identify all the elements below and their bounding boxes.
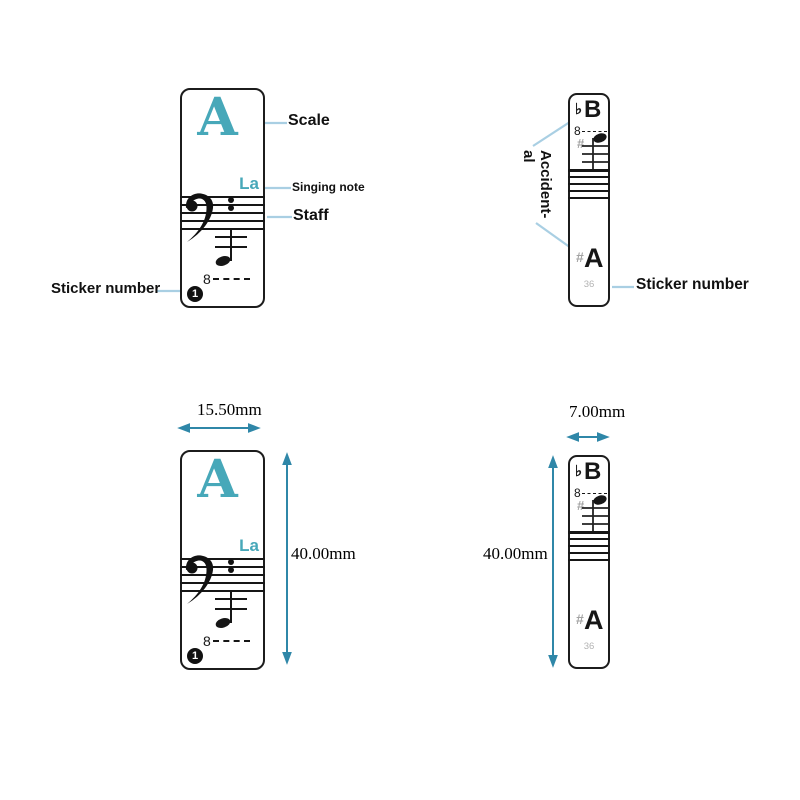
- white-width-arrow: [180, 425, 258, 432]
- black-width-arrow: [569, 434, 607, 441]
- octave-number: 8: [203, 633, 211, 649]
- flat-symbol: ♭: [575, 100, 582, 118]
- sticker-number-label-right: Sticker number: [636, 276, 749, 294]
- accidental-label-line2: al: [520, 150, 537, 228]
- staff-lines: [568, 169, 610, 199]
- octave-number: 8: [203, 271, 211, 287]
- scale-letter: A: [182, 92, 253, 144]
- clef-dot: [228, 205, 234, 211]
- white-key-sticker-dimensioned: A La 8 1: [180, 450, 265, 670]
- scale-label: Scale: [288, 112, 330, 130]
- accidental-label: Accident- al: [518, 150, 554, 228]
- staff-label: Staff: [293, 207, 329, 225]
- singing-note-text: La: [239, 536, 259, 556]
- sharp-letter: A: [584, 243, 604, 274]
- low-note-icon: [206, 228, 250, 270]
- high-note-icon: [578, 494, 612, 534]
- accidental-label-line1: Accident-: [537, 150, 554, 228]
- white-height-dimension: 40.00mm: [291, 544, 356, 564]
- flat-letter: B: [584, 96, 601, 124]
- sticker-number-label-left: Sticker number: [51, 280, 160, 297]
- singing-note-label: Singing note: [292, 180, 365, 194]
- sharp-letter: A: [584, 605, 604, 636]
- sharp-symbol-bottom: #: [576, 249, 584, 265]
- low-note-icon: [206, 590, 250, 632]
- octave-marker: 8: [203, 633, 250, 649]
- octave-dashes: [213, 278, 250, 280]
- staff-lines: [568, 531, 610, 561]
- white-height-arrow: [284, 455, 291, 662]
- sticker-number-text: 36: [570, 279, 608, 290]
- clef-dot: [228, 197, 234, 203]
- black-width-dimension: 7.00mm: [569, 402, 625, 422]
- singing-note-text: La: [239, 174, 259, 194]
- black-height-dimension: 40.00mm: [483, 544, 548, 564]
- clef-dot: [228, 559, 234, 565]
- high-note-icon: [578, 132, 612, 172]
- annotation-lines-layer: [0, 0, 800, 800]
- clef-dot: [228, 567, 234, 573]
- white-width-dimension: 15.50mm: [197, 400, 262, 420]
- sticker-number-badge: 1: [187, 286, 203, 302]
- sticker-number-text: 36: [570, 641, 608, 652]
- black-key-sticker-dimensioned: ♭ B 8 # # A 36: [568, 455, 610, 669]
- flat-symbol: ♭: [575, 462, 582, 480]
- flat-letter: B: [584, 458, 601, 486]
- sticker-number-badge: 1: [187, 648, 203, 664]
- black-key-sticker-annotated: ♭ B 8 # # A 36: [568, 93, 610, 307]
- scale-letter: A: [182, 454, 253, 506]
- white-key-sticker-annotated: A La 8 1: [180, 88, 265, 308]
- black-height-arrow: [550, 458, 557, 665]
- octave-marker: 8: [203, 271, 250, 287]
- octave-dashes: [213, 640, 250, 642]
- sticker-diagram-canvas: A La 8 1 Scale Singing note Staff Sticke…: [0, 0, 800, 800]
- sharp-symbol-bottom: #: [576, 611, 584, 627]
